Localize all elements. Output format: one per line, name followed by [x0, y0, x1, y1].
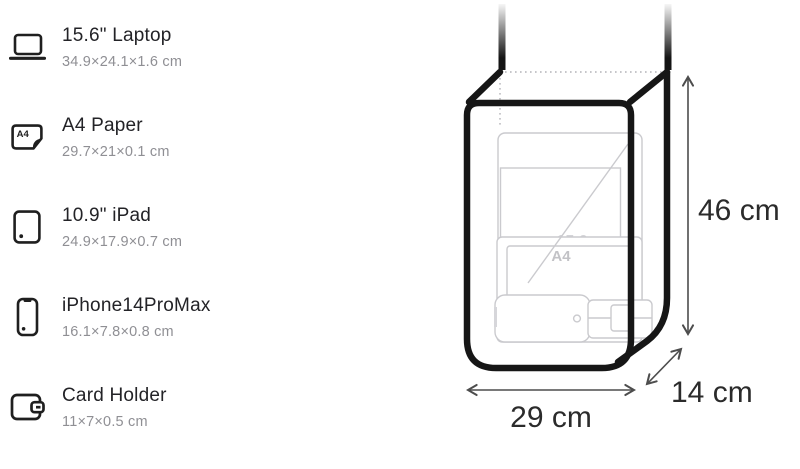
laptop-icon	[6, 33, 48, 61]
item-list: 15.6" Laptop 34.9×24.1×1.6 cm A4 A4 Pape…	[6, 19, 211, 469]
bag-straps	[502, 4, 668, 70]
height-dimension-label: 46 cm	[698, 194, 780, 227]
bag-dimension-diagram: 15.6 A4 46 cm 29 cm 14 cm	[430, 0, 800, 455]
iphone-icon	[6, 296, 48, 338]
list-item-laptop: 15.6" Laptop 34.9×24.1×1.6 cm	[6, 19, 211, 75]
list-item-card-holder: Card Holder 11×7×0.5 cm	[6, 379, 211, 435]
bag-diagram-svg: 15.6 A4 46 cm 29 cm 14 cm	[430, 0, 800, 455]
item-dimensions: 16.1×7.8×0.8 cm	[62, 324, 211, 341]
a4-icon-label: A4	[17, 129, 30, 140]
item-dimensions: 11×7×0.5 cm	[62, 414, 167, 431]
bag-top-left-edge	[469, 72, 500, 102]
inner-iphone-outline	[495, 295, 590, 342]
list-item-iphone: iPhone14ProMax 16.1×7.8×0.8 cm	[6, 289, 211, 345]
item-name: 10.9" iPad	[62, 204, 182, 227]
item-dimensions: 34.9×24.1×1.6 cm	[62, 54, 182, 71]
list-item-a4-paper: A4 A4 Paper 29.7×21×0.1 cm	[6, 109, 211, 165]
item-name: 15.6" Laptop	[62, 24, 182, 47]
depth-dimension-label: 14 cm	[671, 376, 753, 409]
ipad-icon	[6, 209, 48, 245]
item-dimensions: 29.7×21×0.1 cm	[62, 144, 170, 161]
inner-a4-label: A4	[551, 248, 571, 265]
a4-paper-icon: A4	[6, 123, 48, 151]
item-name: iPhone14ProMax	[62, 294, 211, 317]
item-name: Card Holder	[62, 384, 167, 407]
item-name: A4 Paper	[62, 114, 170, 137]
width-dimension-label: 29 cm	[510, 401, 592, 434]
inner-iphone-button	[494, 307, 497, 327]
item-text: 10.9" iPad 24.9×17.9×0.7 cm	[62, 204, 182, 251]
size-comparison-page: { "items": [ { "name": "15.6\" Laptop", …	[0, 0, 800, 455]
card-holder-icon	[6, 392, 48, 422]
item-text: 15.6" Laptop 34.9×24.1×1.6 cm	[62, 24, 182, 71]
list-item-ipad: 10.9" iPad 24.9×17.9×0.7 cm	[6, 199, 211, 255]
item-text: iPhone14ProMax 16.1×7.8×0.8 cm	[62, 294, 211, 341]
item-text: A4 Paper 29.7×21×0.1 cm	[62, 114, 170, 161]
item-text: Card Holder 11×7×0.5 cm	[62, 384, 167, 431]
item-dimensions: 24.9×17.9×0.7 cm	[62, 234, 182, 251]
bag-top-right-edge	[630, 72, 667, 102]
